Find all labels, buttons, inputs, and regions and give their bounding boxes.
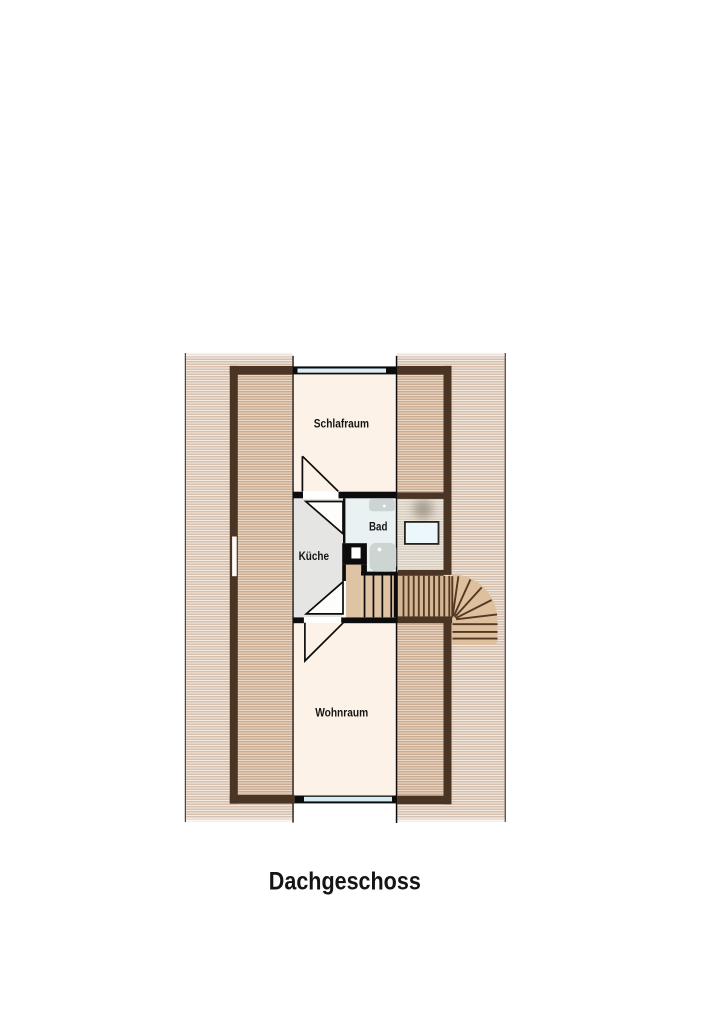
svg-text:Schlafraum: Schlafraum <box>314 417 369 431</box>
svg-text:Dachgeschoss: Dachgeschoss <box>269 868 421 896</box>
svg-text:Küche: Küche <box>299 549 330 563</box>
svg-text:Bad: Bad <box>369 520 387 534</box>
svg-text:Wohnraum: Wohnraum <box>315 706 368 720</box>
